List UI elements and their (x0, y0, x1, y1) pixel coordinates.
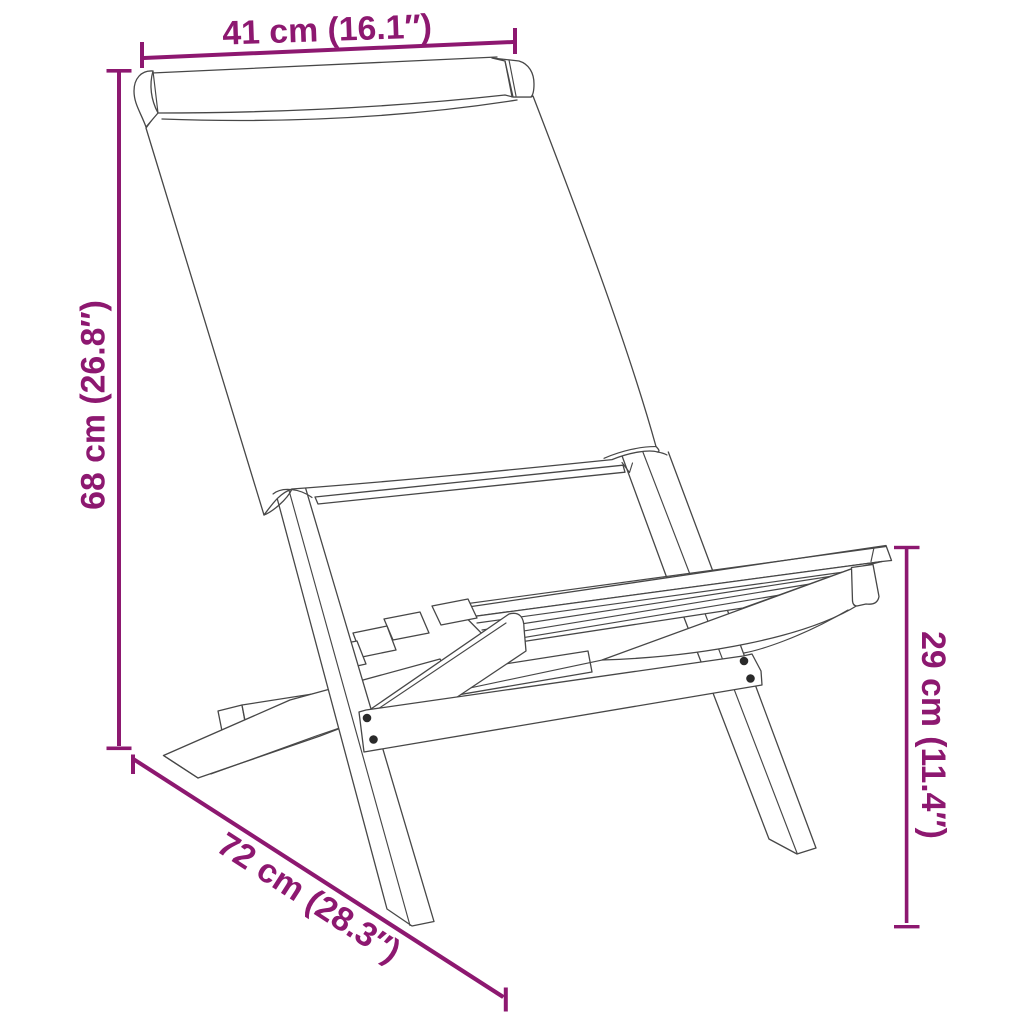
svg-text:68 cm (26.8″): 68 cm (26.8″) (75, 300, 113, 510)
svg-text:29 cm (11.4″): 29 cm (11.4″) (914, 631, 952, 839)
svg-text:41 cm (16.1″): 41 cm (16.1″) (222, 7, 433, 52)
